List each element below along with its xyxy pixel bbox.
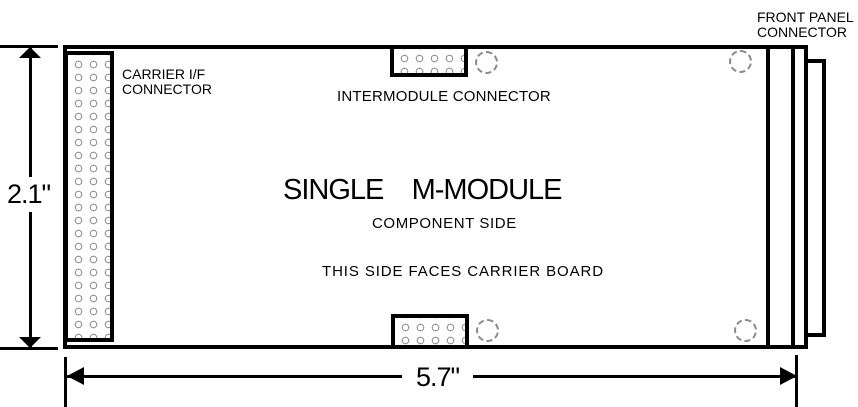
carrier-if-connector-label-line1: CARRIER I/F: [122, 67, 212, 82]
intermodule-connector-top: [390, 45, 468, 77]
board-subtitle: COMPONENT SIDE: [372, 215, 517, 232]
width-dim-label: 5.7": [402, 360, 473, 395]
front-panel-connector-label-line2: CONNECTOR: [757, 25, 854, 40]
height-dim-arrowhead-bottom: [19, 337, 41, 348]
carrier-if-connector-label: CARRIER I/F CONNECTOR: [122, 67, 212, 96]
front-panel-connector-label-line1: FRONT PANEL: [757, 10, 854, 25]
front-panel-connector-label: FRONT PANEL CONNECTOR: [757, 10, 854, 39]
front-panel: [804, 59, 826, 337]
mounting-hole-bottom-right: [734, 319, 757, 342]
board-title: SINGLE M-MODULE: [283, 174, 562, 207]
width-dim-arrowhead-right: [780, 367, 797, 385]
intermodule-connector-label: INTERMODULE CONNECTOR: [337, 88, 551, 105]
mounting-hole-top-center: [475, 51, 498, 74]
width-dim-arrowhead-left: [67, 367, 84, 385]
board-note: THIS SIDE FACES CARRIER BOARD: [322, 263, 604, 280]
mounting-hole-top-right: [729, 50, 752, 73]
carrier-if-connector-label-line2: CONNECTOR: [122, 82, 212, 97]
carrier-if-connector: [64, 51, 114, 342]
height-dim-label: 2.1": [4, 177, 53, 212]
intermodule-connector-bottom: [391, 314, 469, 349]
mmodule-diagram: 2.1" 5.7" CARRIER I/F CONNECTOR INTERMOD…: [0, 0, 858, 407]
mounting-hole-bottom-center: [476, 319, 499, 342]
height-dim-arrowhead-top: [19, 47, 41, 58]
